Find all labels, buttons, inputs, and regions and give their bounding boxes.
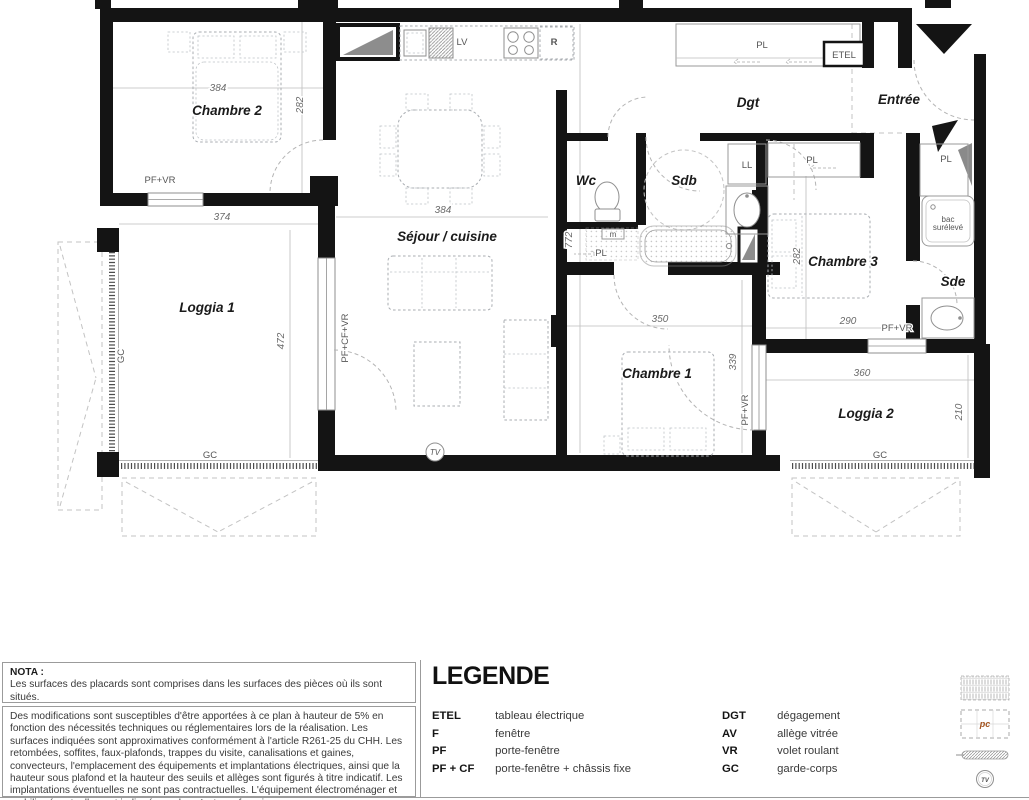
room-label-sejour: Séjour / cuisine bbox=[397, 229, 497, 244]
svg-text:360: 360 bbox=[854, 368, 871, 379]
tile-pattern-icon bbox=[961, 676, 1009, 700]
room-label-chambre-3: Chambre 3 bbox=[808, 254, 878, 269]
room-label-chambre-2: Chambre 2 bbox=[192, 103, 262, 118]
legend-row: AV allège vitrée bbox=[722, 728, 840, 746]
svg-text:TV: TV bbox=[981, 778, 990, 784]
svg-text:472: 472 bbox=[276, 332, 287, 349]
svg-text:339: 339 bbox=[728, 353, 739, 370]
disclaimer-box: Des modifications sont susceptibles d'êt… bbox=[2, 706, 416, 797]
legend-label: garde-corps bbox=[777, 763, 837, 775]
room-label-dgt: Dgt bbox=[737, 95, 760, 110]
nota-line: Les surfaces des placards sont comprises… bbox=[10, 679, 408, 704]
railing-garde-corps bbox=[112, 250, 974, 466]
legend-row: PF porte-fenêtre bbox=[432, 745, 631, 763]
sofa-icon bbox=[388, 256, 492, 310]
legend-column-2: DGT dégagement AV allège vitrée VR volet… bbox=[722, 710, 840, 780]
radiator-icon bbox=[956, 751, 1008, 759]
svg-text:282: 282 bbox=[295, 96, 306, 114]
entrance-arrow-icon bbox=[916, 24, 972, 54]
nota-title: NOTA : bbox=[10, 667, 408, 679]
toilet-icon bbox=[595, 182, 620, 221]
room-label-sde: Sde bbox=[941, 274, 966, 289]
svg-text:350: 350 bbox=[652, 314, 669, 325]
kitchen bbox=[400, 26, 574, 60]
legend-abbr: GC bbox=[722, 763, 774, 775]
tv-symbol-icon: TV bbox=[977, 771, 994, 788]
legend-abbr: AV bbox=[722, 728, 774, 740]
legend-label: volet roulant bbox=[777, 745, 839, 757]
svg-text:R: R bbox=[551, 37, 558, 48]
shower-screen bbox=[958, 143, 972, 186]
svg-text:PL: PL bbox=[756, 40, 768, 51]
windows bbox=[148, 193, 926, 430]
floor-plan-page: TV Chambre 2 Loggia 1 Séjour / cuisine W… bbox=[0, 0, 1029, 800]
divider bbox=[420, 660, 421, 797]
svg-text:384: 384 bbox=[210, 83, 227, 94]
legend-abbr: DGT bbox=[722, 710, 774, 722]
svg-text:ETEL: ETEL bbox=[832, 50, 856, 61]
legend-abbr: PF + CF bbox=[432, 763, 492, 775]
svg-text:PF+CF+VR: PF+CF+VR bbox=[340, 313, 351, 362]
svg-text:m: m bbox=[610, 230, 617, 239]
svg-text:GC: GC bbox=[873, 450, 887, 461]
room-label-entree: Entrée bbox=[878, 92, 921, 107]
dimension-lines bbox=[113, 22, 974, 458]
legend-column-1: ETEL tableau électrique F fenêtre PF por… bbox=[432, 710, 631, 780]
legend-abbr: ETEL bbox=[432, 710, 492, 722]
svg-text:LV: LV bbox=[457, 37, 469, 48]
hob-icon bbox=[504, 28, 538, 58]
room-label-chambre-1: Chambre 1 bbox=[622, 366, 692, 381]
bottom-rule bbox=[0, 797, 1029, 798]
disclaimer-text: Des modifications sont susceptibles d'êt… bbox=[10, 711, 402, 800]
nota-box: NOTA : Les surfaces des placards sont co… bbox=[2, 662, 416, 703]
room-label-loggia-1: Loggia 1 bbox=[179, 300, 235, 315]
svg-text:PF+VR: PF+VR bbox=[145, 175, 176, 186]
legend-label: tableau électrique bbox=[495, 710, 584, 722]
tv-marker: TV bbox=[426, 443, 444, 461]
room-label-loggia-2: Loggia 2 bbox=[838, 406, 894, 421]
legend-label: fenêtre bbox=[495, 728, 530, 740]
svg-text:282: 282 bbox=[792, 247, 803, 265]
legend-abbr: F bbox=[432, 728, 492, 740]
svg-text:PF+VR: PF+VR bbox=[740, 394, 751, 425]
legend-title: LEGENDE bbox=[432, 662, 549, 691]
legend-abbr: VR bbox=[722, 745, 774, 757]
svg-text:TV: TV bbox=[430, 448, 441, 457]
room-labels: Chambre 2 Loggia 1 Séjour / cuisine Wc S… bbox=[179, 92, 966, 421]
washbasin-icon bbox=[922, 298, 974, 338]
legend-row: ETEL tableau électrique bbox=[432, 710, 631, 728]
dining-table-icon bbox=[380, 94, 500, 204]
dishwasher-icon bbox=[429, 28, 453, 58]
svg-text:210: 210 bbox=[954, 403, 965, 421]
legend-row: GC garde-corps bbox=[722, 763, 840, 781]
svg-text:pc: pc bbox=[979, 719, 991, 729]
legend-symbols: pc TV bbox=[954, 672, 1018, 799]
room-label-wc: Wc bbox=[576, 173, 597, 188]
svg-text:GC: GC bbox=[116, 349, 127, 363]
svg-text:PL: PL bbox=[806, 155, 818, 166]
svg-text:374: 374 bbox=[214, 212, 231, 223]
legend-row: DGT dégagement bbox=[722, 710, 840, 728]
bed-icon bbox=[168, 32, 306, 142]
legend-label: allège vitrée bbox=[777, 728, 838, 740]
carpet-pc-icon: pc bbox=[961, 710, 1009, 738]
legend-label: dégagement bbox=[777, 710, 840, 722]
tv-unit-icon bbox=[504, 320, 548, 420]
bottom-panel: NOTA : Les surfaces des placards sont co… bbox=[0, 656, 1029, 800]
bathtub-icon bbox=[640, 226, 736, 266]
legend-label: porte-fenêtre + châssis fixe bbox=[495, 763, 631, 775]
legend-row: F fenêtre bbox=[432, 728, 631, 746]
legend-label: porte-fenêtre bbox=[495, 745, 560, 757]
closet-door-leaf bbox=[932, 120, 958, 152]
room-label-sdb: Sdb bbox=[671, 173, 697, 188]
svg-text:384: 384 bbox=[435, 205, 452, 216]
svg-text:PF+VR: PF+VR bbox=[882, 323, 913, 334]
svg-text:surélevé: surélevé bbox=[933, 223, 964, 232]
legend-abbr: PF bbox=[432, 745, 492, 757]
annotation-texts: PF+VR PF+CF+VR PF+VR PF+VR GC GC GC PL E… bbox=[116, 37, 964, 461]
turning-circle bbox=[644, 150, 724, 230]
svg-text:290: 290 bbox=[839, 316, 857, 327]
floor-plan-svg: TV Chambre 2 Loggia 1 Séjour / cuisine W… bbox=[0, 0, 1029, 656]
low-table-icon bbox=[414, 342, 460, 406]
svg-text:PL: PL bbox=[595, 248, 607, 259]
svg-text:LL: LL bbox=[742, 160, 753, 171]
legend-row: PF + CF porte-fenêtre + châssis fixe bbox=[432, 763, 631, 781]
svg-text:GC: GC bbox=[203, 450, 217, 461]
svg-text:PL: PL bbox=[940, 154, 952, 165]
legend-row: VR volet roulant bbox=[722, 745, 840, 763]
svg-text:772: 772 bbox=[564, 231, 575, 248]
